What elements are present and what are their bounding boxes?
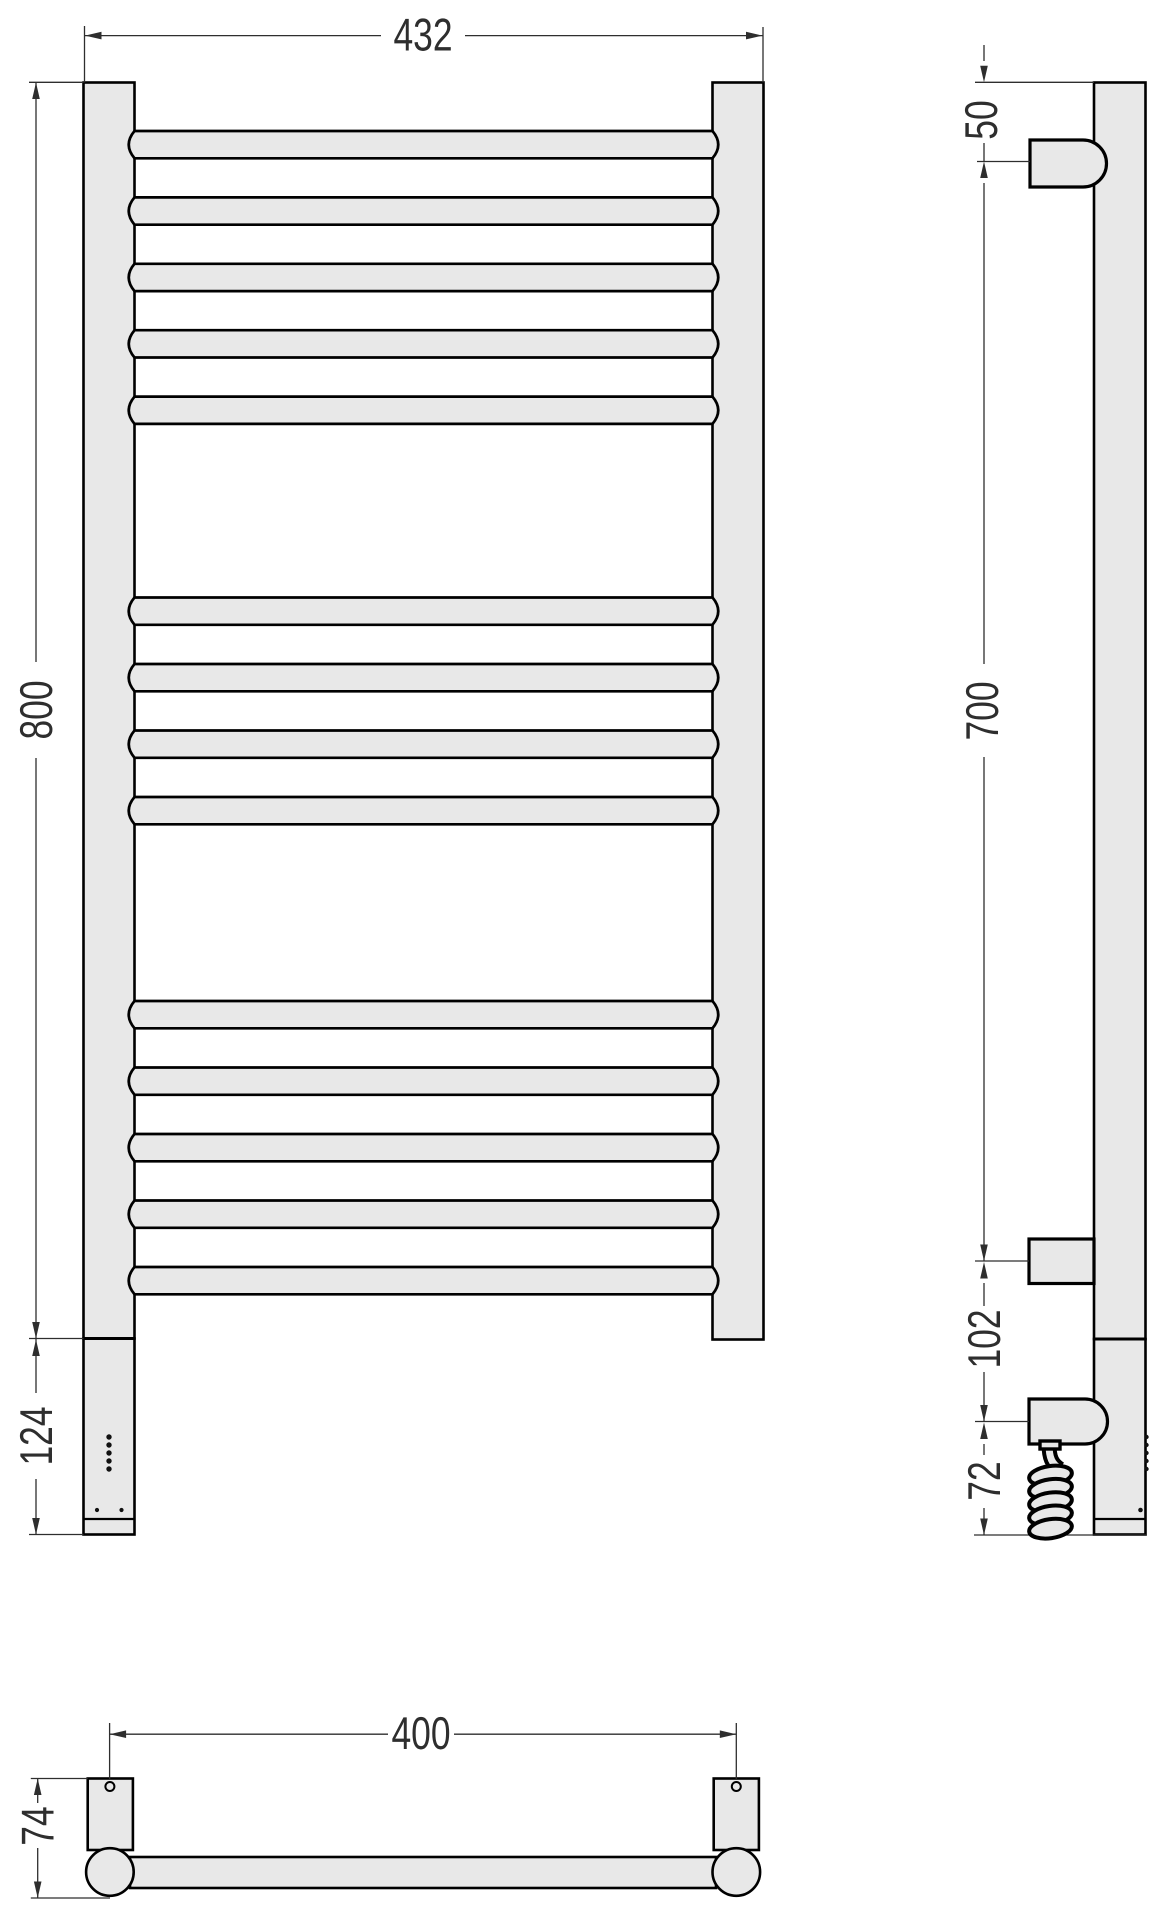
svg-text:700: 700 — [956, 681, 1008, 740]
svg-text:800: 800 — [10, 680, 62, 739]
svg-text:50: 50 — [955, 100, 1007, 139]
svg-text:400: 400 — [391, 1707, 450, 1759]
svg-text:74: 74 — [12, 1806, 64, 1845]
svg-text:102: 102 — [958, 1309, 1010, 1368]
svg-text:124: 124 — [10, 1406, 62, 1465]
svg-text:432: 432 — [393, 9, 452, 61]
svg-text:72: 72 — [958, 1461, 1010, 1500]
